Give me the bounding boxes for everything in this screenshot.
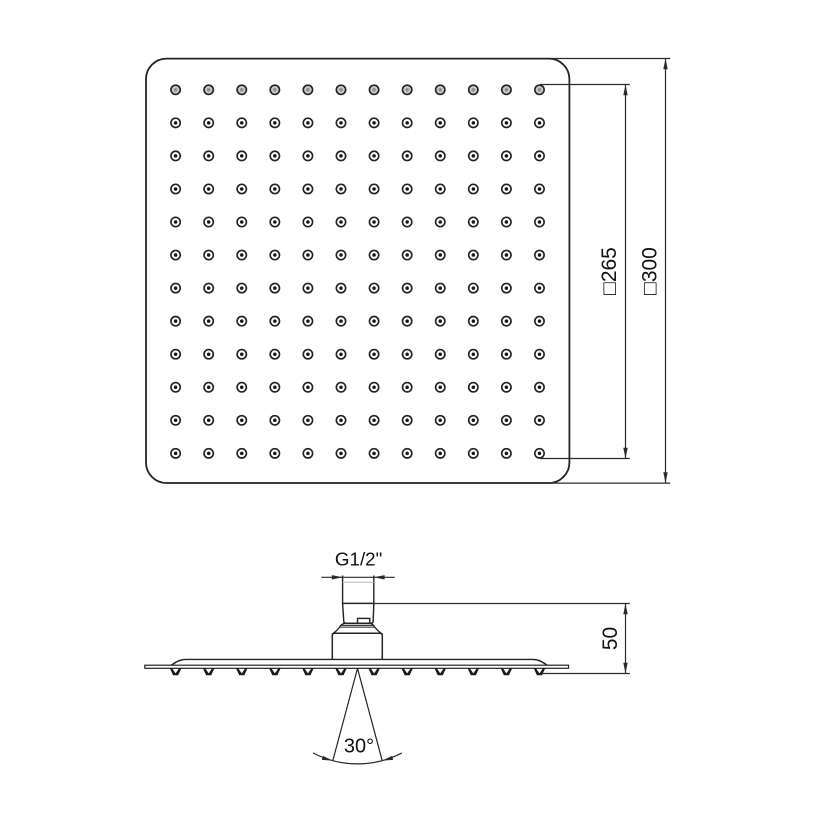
svg-text:G1/2": G1/2" <box>335 548 382 569</box>
svg-text:□300: □300 <box>638 247 661 295</box>
svg-text:30°: 30° <box>344 735 374 757</box>
svg-text:50: 50 <box>599 627 622 650</box>
svg-text:□265: □265 <box>598 247 621 295</box>
